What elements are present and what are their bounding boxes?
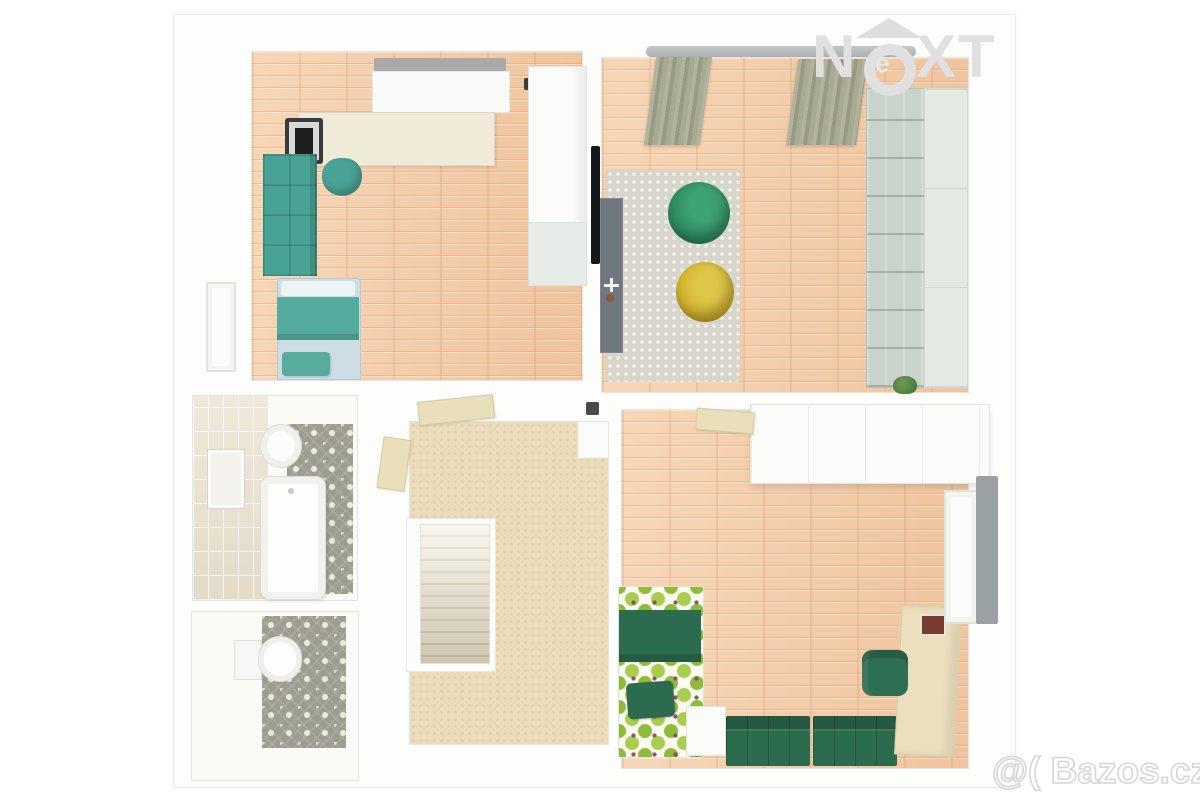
bedroom-nightstand: [686, 706, 726, 756]
bathroom-mirror: [208, 450, 244, 508]
bathtub-faucet: [288, 488, 294, 494]
kids-wardrobe-lower: [528, 222, 587, 286]
bedroom-bed-blanket: [619, 610, 701, 662]
window-sill: [372, 71, 510, 113]
kids-desk: [298, 112, 495, 166]
bench-sofa-left: [726, 716, 810, 766]
logo-letter-n: N: [812, 18, 857, 96]
kids-desk-chair: [322, 158, 362, 196]
toilet-bowl: [258, 636, 302, 682]
next-brand-watermark: N e XT: [812, 18, 1012, 96]
bedroom-bed-pillow: [626, 680, 675, 719]
kids-bed-pillow: [281, 281, 355, 296]
bedroom-door-right: [944, 490, 978, 624]
bedroom-wardrobe: [750, 404, 990, 484]
wall-tv: [591, 146, 600, 264]
bench-sofa-right: [813, 716, 897, 766]
bedroom-desk-chair: [862, 650, 908, 696]
hallway-dark-box: [586, 402, 599, 415]
toy-figure: [606, 294, 614, 302]
toy-airplane-body-icon: [610, 278, 613, 292]
logo-letter-e: e: [875, 48, 889, 79]
kids-bed-foot-pillow: [282, 352, 330, 376]
floor-plan-render: N e XT @( Bazos.cz: [0, 0, 1200, 800]
kids-room-door-frame: [206, 282, 236, 372]
shelving-unit-shelves: [866, 88, 926, 388]
desk-picture: [920, 614, 946, 636]
bean-bag-yellow: [676, 262, 734, 322]
bathroom-sink: [260, 424, 302, 468]
bedroom-gray-mirror-panel: [976, 476, 998, 624]
tv-cabinet: [600, 198, 623, 353]
logo-letters-xt: XT: [916, 18, 997, 96]
plant: [893, 376, 917, 394]
logo-ring-icon: [864, 44, 916, 96]
bean-bag-green: [668, 182, 730, 244]
logo-roof-icon: [856, 18, 922, 38]
window-radiator-bar: [374, 58, 506, 71]
hallway-floor-notch: [578, 422, 608, 458]
bazos-site-watermark: @( Bazos.cz: [992, 750, 1197, 796]
bathtub: [260, 476, 326, 600]
kids-bed-blanket: [277, 297, 359, 340]
teal-cube-shelf: [263, 154, 317, 276]
staircase: [420, 524, 490, 664]
shelving-unit-side-panel: [924, 88, 968, 388]
